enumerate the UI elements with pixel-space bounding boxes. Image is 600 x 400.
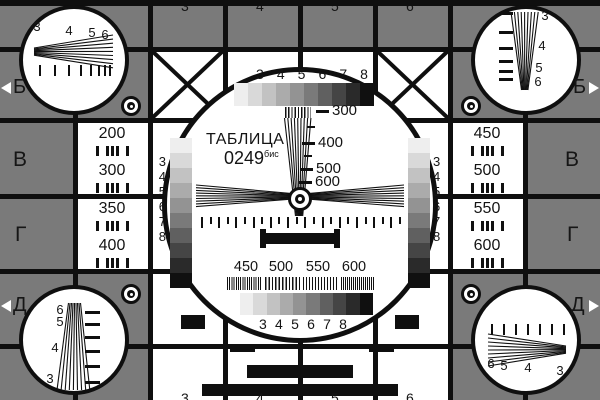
grayscale-step (408, 243, 430, 258)
grayscale-step (408, 213, 430, 228)
grayscale-step (318, 83, 332, 106)
calibration-tick (365, 217, 367, 224)
tick-mark (471, 183, 474, 193)
corner-fan-label: 5 (498, 359, 510, 372)
grayscale-step-label: 4 (433, 170, 449, 183)
grayscale-step (290, 83, 304, 106)
edge-letter-d-left: Д (13, 295, 27, 315)
registration-target (461, 284, 481, 304)
tick-pattern (452, 146, 522, 156)
grayscale-step (306, 293, 319, 315)
line-mark-left (230, 344, 255, 352)
calibration-tick (390, 217, 392, 228)
wedge-scale-dash (302, 142, 315, 145)
grayscale-step-label: 3 (256, 67, 264, 81)
registration-target (121, 284, 141, 304)
grayscale-step-label: 4 (275, 317, 283, 332)
calibration-tick (551, 324, 553, 335)
calibration-tick (399, 217, 401, 224)
grayscale-step (170, 183, 192, 198)
calibration-tick (527, 324, 529, 335)
tick-group (471, 183, 474, 193)
wedge-scale-label: 600 (315, 174, 347, 189)
wedge-scale-label: 400 (318, 135, 350, 150)
tick-mark (126, 146, 129, 156)
calibration-tick (85, 336, 100, 339)
line-grating-300 (285, 107, 311, 118)
calibration-tick (85, 323, 100, 326)
row-letter-v-left: В (13, 149, 27, 170)
calibration-tick (322, 217, 324, 228)
wedge-scale-dash (299, 181, 312, 184)
wedge-scale-minor-dash (304, 155, 312, 157)
calibration-tick (499, 70, 513, 73)
corner-circle-top-right (471, 5, 581, 115)
calibration-tick (54, 65, 56, 76)
grayscale-step (267, 293, 280, 315)
cropped-column-digit: 3 (181, 6, 197, 15)
calibration-tick (296, 217, 298, 224)
cropped-digit-text: 5 (331, 393, 347, 400)
tick-mark (501, 146, 504, 156)
freq-grating-450 (227, 277, 262, 290)
tick-mark (491, 146, 494, 156)
calibration-tick (201, 217, 203, 228)
corner-fan-label: 3 (539, 9, 551, 22)
tick-mark (471, 258, 474, 268)
grayscale-step-label: 8 (339, 317, 347, 332)
tick-group (96, 146, 99, 156)
grayscale-step (253, 293, 266, 315)
grayscale-step-label: 7 (323, 317, 331, 332)
arrow-left-b-icon (1, 82, 11, 94)
grayscale-step (262, 83, 276, 106)
grayscale-step (360, 293, 373, 315)
cropped-digit-text: 4 (256, 6, 272, 13)
card-title: ТАБЛИЦА (206, 132, 284, 148)
tick-mark (111, 146, 114, 156)
tick-group (481, 258, 494, 268)
tick-group (471, 221, 474, 231)
corner-fan-label: 6 (532, 75, 544, 88)
tick-group (501, 258, 504, 268)
corner-fan-label: 3 (554, 364, 566, 377)
cell-550: 550 (452, 201, 522, 217)
tick-pattern (77, 146, 147, 156)
tick-pattern (77, 221, 147, 231)
reference-bar-cap-left (260, 229, 266, 248)
cropped-digit-text: 3 (181, 393, 197, 400)
grayscale-step-label: 6 (433, 200, 449, 213)
calibration-tick (347, 217, 349, 224)
arrow-left-d-icon (1, 300, 11, 312)
tick-mark (96, 221, 99, 231)
tick-group (481, 183, 494, 193)
grayscale-step (408, 273, 430, 288)
corner-fan-label: 6 (485, 357, 497, 370)
grayscale-step-label: 8 (150, 230, 166, 243)
tick-group (106, 258, 119, 268)
row-letter-v-right: В (565, 149, 579, 170)
tick-pattern (77, 258, 147, 268)
tick-mark (106, 221, 109, 231)
grayscale-step (170, 153, 192, 168)
calibration-tick (563, 324, 565, 335)
edge-letter-b-left: Б (13, 77, 26, 97)
calibration-tick (253, 217, 255, 228)
tick-mark (486, 258, 489, 268)
cropped-column-digit: 4 (256, 6, 272, 15)
calibration-tick (98, 65, 100, 76)
grayscale-step (408, 228, 430, 243)
tick-mark (116, 146, 119, 156)
calibration-tick (373, 217, 375, 228)
calibration-tick (109, 65, 111, 76)
grayscale-step-label: 7 (433, 215, 449, 228)
grayscale-step (408, 153, 430, 168)
grayscale-step (346, 293, 359, 315)
calibration-tick (491, 324, 493, 335)
tick-group (126, 183, 129, 193)
tick-group (126, 258, 129, 268)
bottom-bar-short (247, 365, 353, 378)
corner-fan-label: 4 (536, 39, 548, 52)
tick-mark (116, 221, 119, 231)
tick-group (106, 146, 119, 156)
calibration-tick (218, 217, 220, 228)
tick-group (471, 258, 474, 268)
arrow-right-d-icon (589, 300, 599, 312)
grayscale-step-label: 4 (150, 170, 166, 183)
corner-fan-label: 5 (86, 26, 98, 39)
tick-mark (481, 183, 484, 193)
freq-grating-500 (265, 277, 300, 290)
row-letter-g-right: Г (567, 224, 578, 245)
calibration-tick (104, 65, 106, 76)
corner-fan-label: 4 (63, 24, 75, 37)
corner-fan-label: 4 (522, 361, 534, 374)
cropped-column-digit: 5 (331, 6, 347, 15)
tick-group (96, 183, 99, 193)
tick-pattern (77, 183, 147, 193)
cell-450: 450 (452, 126, 522, 142)
calibration-tick (382, 217, 384, 224)
tick-mark (111, 221, 114, 231)
grayscale-step-label: 5 (291, 317, 299, 332)
grayscale-step (280, 293, 293, 315)
calibration-tick (85, 311, 100, 314)
calibration-tick (304, 217, 306, 228)
black-patch-left (181, 315, 205, 329)
grayscale-step (170, 198, 192, 213)
corner-fan-label: 5 (533, 61, 545, 74)
tick-mark (471, 146, 474, 156)
cropped-column-digit: 3 (181, 393, 197, 400)
grayscale-step (408, 168, 430, 183)
tick-mark (486, 183, 489, 193)
tick-mark (481, 258, 484, 268)
tick-group (126, 221, 129, 231)
tick-pattern (452, 183, 522, 193)
test-card: 345678 ТАБЛИЦА 0249бис 450 500 550 600 3… (0, 0, 600, 400)
wedge-scale-dash (300, 168, 313, 171)
grayscale-step (408, 138, 430, 153)
calibration-tick (499, 47, 513, 50)
calibration-tick (227, 217, 229, 224)
grayscale-step-label: 5 (433, 185, 449, 198)
tick-group (501, 183, 504, 193)
grayscale-step-label: 5 (298, 67, 306, 81)
reference-bar (263, 233, 337, 244)
tick-group (96, 258, 99, 268)
calibration-tick (539, 324, 541, 335)
grayscale-step-label: 8 (360, 67, 368, 81)
tick-mark (501, 183, 504, 193)
cropped-column-digit: 4 (256, 393, 272, 400)
tick-mark (486, 146, 489, 156)
grayscale-step (248, 83, 262, 106)
tick-mark (116, 258, 119, 268)
grayscale-step-label: 5 (150, 185, 166, 198)
grayscale-bar-right (408, 138, 430, 288)
tick-pattern (452, 258, 522, 268)
cropped-digit-text: 4 (256, 393, 272, 400)
grayscale-step (170, 138, 192, 153)
grayscale-step-label: 6 (150, 200, 166, 213)
grayscale-step (170, 243, 192, 258)
grayscale-step-label: 8 (433, 230, 449, 243)
tick-mark (96, 183, 99, 193)
tick-mark (126, 221, 129, 231)
reference-bar-cap-right (334, 229, 340, 248)
cropped-digit-text: 3 (181, 6, 197, 13)
edge-letter-b-right: Б (573, 77, 586, 97)
calibration-tick (235, 217, 237, 228)
freq-grating-550 (303, 277, 338, 290)
tick-group (106, 221, 119, 231)
tick-group (501, 221, 504, 231)
freq-label-550: 550 (302, 260, 334, 275)
row-letter-g-left: Г (15, 224, 26, 245)
calibration-tick (330, 217, 332, 224)
tick-mark (116, 183, 119, 193)
tick-group (126, 146, 129, 156)
calibration-tick (339, 217, 341, 228)
tick-mark (111, 258, 114, 268)
grayscale-step (276, 83, 290, 106)
edge-letter-d-right: Д (571, 295, 585, 315)
tick-mark (501, 258, 504, 268)
grayscale-labels-bottom: 345678 (259, 317, 347, 332)
calibration-tick (499, 78, 513, 81)
calibration-tick (499, 31, 513, 34)
grayscale-step-label: 3 (433, 155, 449, 168)
tick-mark (126, 258, 129, 268)
calibration-tick (261, 217, 263, 224)
wedge-scale-dash (316, 110, 329, 113)
wedge-scale-minor-dash (307, 126, 315, 128)
grayscale-step-label: 6 (318, 67, 326, 81)
grayscale-step (170, 258, 192, 273)
cropped-column-digit: 5 (331, 393, 347, 400)
grayscale-step (320, 293, 333, 315)
calibration-tick (68, 65, 70, 76)
grayscale-step (234, 83, 248, 106)
tick-pattern (452, 221, 522, 231)
tick-group (96, 221, 99, 231)
tick-mark (501, 221, 504, 231)
registration-target (461, 96, 481, 116)
cropped-digit-text: 6 (406, 6, 422, 13)
tick-mark (471, 221, 474, 231)
tick-mark (491, 221, 494, 231)
calibration-tick (287, 217, 289, 228)
grayscale-step-label: 3 (259, 317, 267, 332)
tick-mark (126, 183, 129, 193)
tick-group (501, 146, 504, 156)
tick-mark (491, 258, 494, 268)
tick-mark (96, 146, 99, 156)
calibration-tick (356, 217, 358, 228)
cell-200: 200 (77, 126, 147, 142)
cropped-digit-text: 6 (406, 393, 422, 400)
grayscale-bar-left (170, 138, 192, 288)
cell-600: 600 (452, 238, 522, 254)
black-patch-right (395, 315, 419, 329)
cropped-column-digit: 6 (406, 6, 422, 15)
calibration-tick (503, 324, 505, 335)
arrow-right-b-icon (589, 82, 599, 94)
tick-group (106, 183, 119, 193)
grayscale-step-label: 6 (307, 317, 315, 332)
calibration-tick (313, 217, 315, 224)
bottom-bar-long (202, 384, 398, 396)
line-mark-right (369, 344, 394, 352)
calibration-tick (85, 381, 100, 384)
calibration-tick (270, 217, 272, 228)
grayscale-step (170, 273, 192, 288)
calibration-tick (278, 217, 280, 224)
freq-label-450: 450 (230, 260, 262, 275)
tick-group (481, 146, 494, 156)
calibration-tick (499, 60, 513, 63)
tick-group (481, 221, 494, 231)
tick-mark (486, 221, 489, 231)
center-target (288, 187, 312, 211)
freq-label-600: 600 (338, 260, 370, 275)
corner-fan-label: 6 (99, 28, 111, 41)
tick-mark (111, 183, 114, 193)
card-number-suffix: бис (264, 149, 279, 159)
corner-fan-label: 3 (31, 20, 43, 33)
tick-mark (96, 258, 99, 268)
grayscale-step (408, 198, 430, 213)
cell-400: 400 (77, 238, 147, 254)
calibration-tick (85, 350, 100, 353)
tick-mark (491, 183, 494, 193)
tick-mark (106, 258, 109, 268)
tick-group (471, 146, 474, 156)
grayscale-labels-top: 345678 (256, 67, 368, 81)
calibration-tick (80, 65, 82, 76)
tick-mark (481, 146, 484, 156)
grayscale-step (304, 83, 318, 106)
cell-350: 350 (77, 201, 147, 217)
grayscale-step-label: 7 (150, 215, 166, 228)
grayscale-step-label: 7 (339, 67, 347, 81)
cell-500: 500 (452, 163, 522, 179)
grayscale-bar-bottom (240, 293, 373, 315)
card-number-text: 0249 (224, 148, 264, 168)
freq-label-500: 500 (265, 260, 297, 275)
cropped-digit-text: 5 (331, 6, 347, 13)
grayscale-step (333, 293, 346, 315)
calibration-tick (210, 217, 212, 224)
calibration-tick (39, 65, 41, 76)
calibration-tick (244, 217, 246, 224)
grayscale-step (408, 258, 430, 273)
calibration-tick (499, 12, 513, 15)
grayscale-step (170, 228, 192, 243)
grayscale-step (170, 213, 192, 228)
grayscale-step (170, 168, 192, 183)
registration-target (121, 96, 141, 116)
grayscale-step-label: 3 (150, 155, 166, 168)
calibration-tick (515, 324, 517, 335)
calibration-tick (90, 65, 92, 76)
grayscale-step (240, 293, 253, 315)
tick-mark (106, 146, 109, 156)
tick-mark (481, 221, 484, 231)
wedge-scale-label: 300 (332, 103, 364, 118)
corner-fan-label: 3 (44, 372, 56, 385)
corner-fan-label: 5 (54, 315, 66, 328)
corner-fan-label: 4 (49, 341, 61, 354)
tick-mark (106, 183, 109, 193)
grayscale-step (293, 293, 306, 315)
grayscale-step-label: 4 (277, 67, 285, 81)
calibration-tick (85, 365, 100, 368)
card-number: 0249бис (224, 149, 279, 167)
cell-300: 300 (77, 163, 147, 179)
cropped-column-digit: 6 (406, 393, 422, 400)
grayscale-step (408, 183, 430, 198)
freq-grating-600 (341, 277, 374, 290)
corner-circle-bottom-right (471, 285, 581, 395)
corner-circle-bottom-left (19, 285, 129, 395)
